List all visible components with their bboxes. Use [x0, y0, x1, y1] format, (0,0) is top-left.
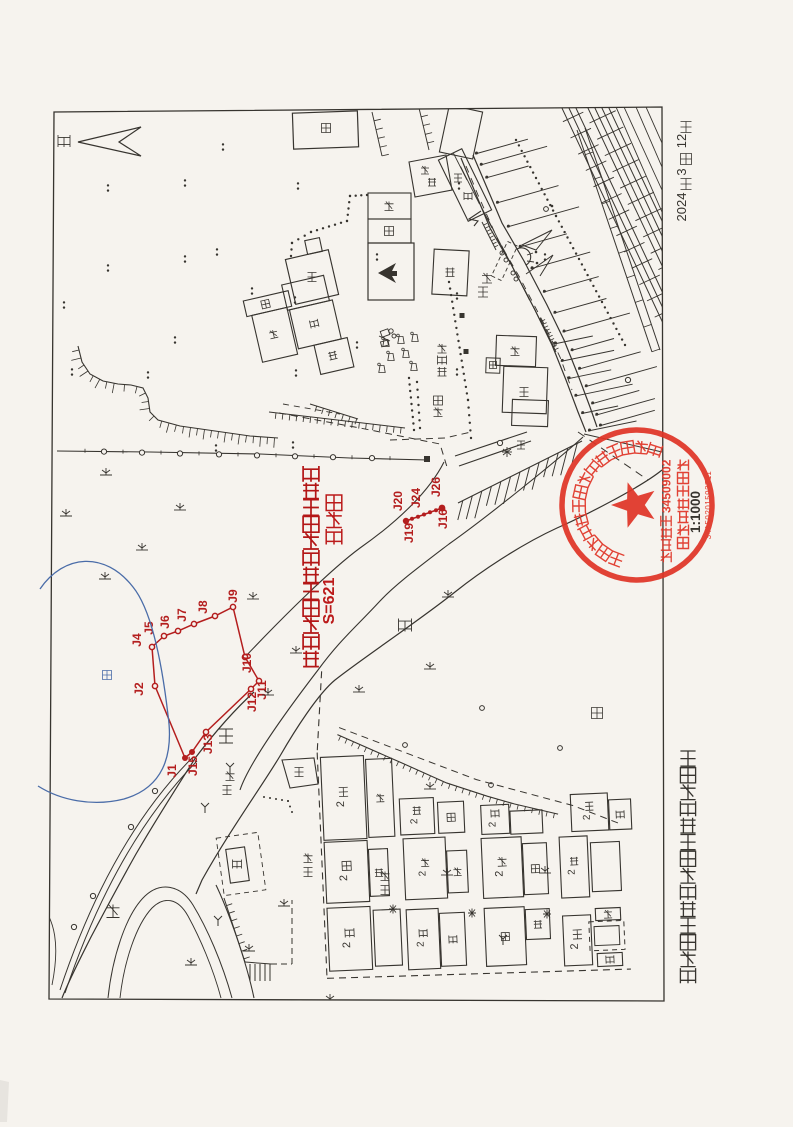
svg-text:2: 2: [569, 943, 581, 950]
svg-text:J7: J7: [175, 608, 189, 622]
svg-text:2: 2: [566, 869, 577, 875]
svg-text:2: 2: [415, 941, 426, 947]
svg-text:J13: J13: [201, 734, 215, 754]
svg-text:J8: J8: [196, 600, 210, 614]
svg-text:2024: 2024: [674, 193, 689, 222]
svg-text:2: 2: [338, 875, 350, 882]
svg-text:J1: J1: [165, 764, 179, 778]
svg-text:J2: J2: [132, 682, 146, 696]
svg-text:J16: J16: [436, 509, 450, 529]
svg-text:J24: J24: [409, 488, 423, 508]
svg-text:2: 2: [493, 870, 505, 877]
svg-text:J12: J12: [245, 692, 259, 712]
svg-text:1:1000: 1:1000: [688, 491, 703, 533]
svg-text:2: 2: [417, 870, 428, 876]
svg-text:J15: J15: [186, 756, 200, 776]
svg-text:S=621: S=621: [321, 578, 338, 625]
svg-text:J20: J20: [391, 491, 405, 511]
svg-text:J10: J10: [240, 653, 254, 673]
svg-text:2: 2: [341, 942, 353, 949]
svg-text:J9: J9: [226, 589, 240, 603]
svg-text:34509002: 34509002: [660, 459, 674, 513]
svg-text:J6: J6: [158, 615, 172, 629]
svg-text:12: 12: [674, 134, 689, 148]
svg-text:34150201592711: 34150201592711: [704, 471, 713, 540]
svg-text:J26: J26: [429, 477, 443, 497]
svg-text:2: 2: [487, 821, 498, 827]
svg-text:3: 3: [674, 168, 689, 175]
svg-text:2: 2: [582, 814, 593, 820]
svg-text:2: 2: [409, 818, 420, 824]
svg-text:2: 2: [335, 801, 347, 808]
svg-text:J19: J19: [402, 523, 416, 543]
